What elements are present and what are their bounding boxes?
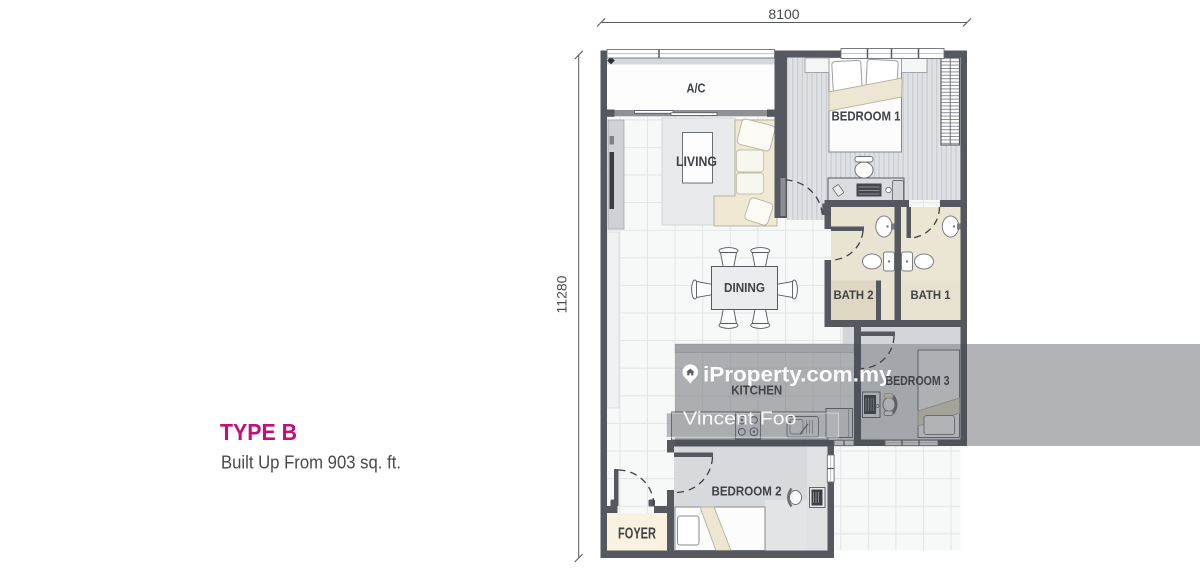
svg-text:A/C: A/C <box>687 81 707 96</box>
svg-text:LIVING: LIVING <box>676 154 717 169</box>
svg-text:8100: 8100 <box>768 6 799 22</box>
svg-text:TYPE B: TYPE B <box>220 419 297 445</box>
svg-text:FOYER: FOYER <box>618 525 656 542</box>
svg-text:Built Up From 903 sq. ft.: Built Up From 903 sq. ft. <box>221 453 401 473</box>
svg-text:DINING: DINING <box>724 280 765 295</box>
svg-text:BEDROOM 1: BEDROOM 1 <box>832 109 901 124</box>
svg-text:BEDROOM 3: BEDROOM 3 <box>886 374 950 388</box>
svg-text:11280: 11280 <box>554 275 570 313</box>
svg-text:Vincent Foo: Vincent Foo <box>683 409 797 429</box>
svg-text:BATH 2: BATH 2 <box>834 288 874 302</box>
svg-text:BEDROOM 2: BEDROOM 2 <box>712 483 782 498</box>
svg-text:KITCHEN: KITCHEN <box>731 383 782 397</box>
svg-text:BATH 1: BATH 1 <box>911 288 951 302</box>
